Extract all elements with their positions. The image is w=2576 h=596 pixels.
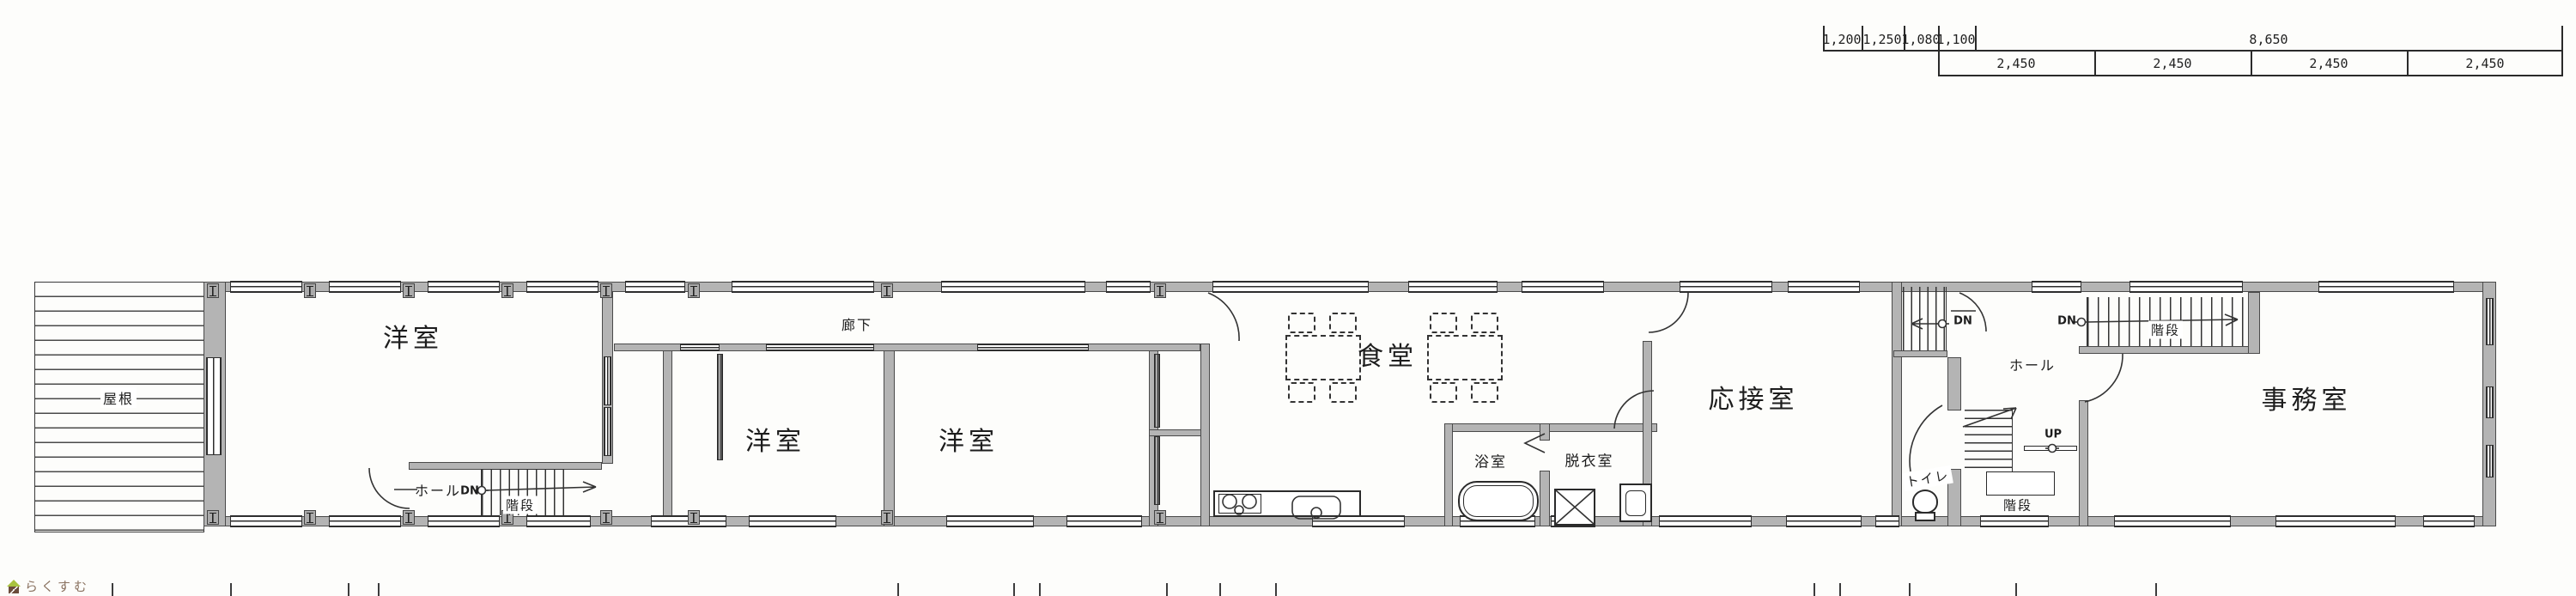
closet-sliding-door (1154, 354, 1160, 428)
window (329, 515, 401, 527)
room-label-dining: 食堂 (1358, 335, 1418, 373)
room-label-hall-east: ホール (2009, 354, 2056, 374)
wall (1444, 423, 1453, 526)
window (2486, 386, 2494, 418)
column-post-icon (688, 283, 700, 298)
window (625, 281, 685, 293)
wall (1947, 357, 1961, 411)
washing-machine (1554, 489, 1595, 526)
chair (1430, 382, 1457, 403)
dimension-tick (1814, 583, 1815, 596)
room-label-toilet: トイレ (1902, 465, 1953, 492)
column-post-icon (1154, 510, 1166, 525)
room-label-reception: 応接室 (1709, 378, 1799, 416)
window (206, 357, 222, 455)
closet-sliding-door (1154, 436, 1160, 505)
room-label-office: 事務室 (2262, 379, 2352, 417)
door-arc (1649, 293, 1688, 332)
stair-treads-dn-hall (1903, 287, 1947, 350)
marker-dn-hall: DN (1953, 315, 1972, 328)
room-label-bathroom: 浴室 (1474, 450, 1507, 471)
column-post-icon (403, 283, 415, 298)
window (1522, 281, 1604, 293)
wall (1444, 423, 1657, 432)
window (2129, 281, 2243, 293)
dining-table (1285, 335, 1361, 380)
chair (1430, 313, 1457, 333)
wall (1893, 350, 1947, 357)
room-label-western-room-2: 洋室 (745, 420, 805, 458)
door-arc (1910, 405, 1942, 471)
door-arc (1208, 293, 1239, 341)
chair (1288, 313, 1315, 333)
window (526, 515, 591, 527)
window (749, 515, 836, 527)
stair-rail (2024, 446, 2077, 451)
wall (1200, 344, 1210, 526)
window (2486, 445, 2494, 477)
level-marker (2078, 319, 2086, 326)
dimension-tick (378, 583, 380, 596)
window (428, 515, 500, 527)
door-arc (369, 468, 410, 508)
window (1408, 281, 1498, 293)
window (1980, 515, 2049, 527)
chair (1471, 313, 1498, 333)
column-post-icon (600, 510, 612, 525)
dimension-tick (2407, 52, 2409, 75)
sliding-door (604, 407, 611, 456)
window (526, 281, 598, 293)
dimension-value: 1,100 (1936, 32, 1975, 47)
room-label-corridor: 廊下 (841, 313, 872, 334)
column-post-icon (304, 510, 316, 525)
room-label-western-room-1: 洋室 (383, 317, 443, 355)
house-icon (7, 580, 21, 593)
wall (1540, 423, 1550, 441)
dimension-tick (2015, 583, 2017, 596)
dimension-tick (1839, 583, 1841, 596)
dimension-tick (2561, 26, 2563, 51)
window (2486, 298, 2494, 345)
column-post-icon (207, 283, 219, 298)
dimension-tick (348, 583, 349, 596)
column-post-icon (1154, 283, 1166, 298)
dimension-tick (1275, 583, 1277, 596)
dimension-tick (230, 583, 232, 596)
dimension-tick (2155, 583, 2157, 596)
dimension-value: 8,650 (2249, 32, 2287, 47)
column-post-icon (403, 510, 415, 525)
window (329, 281, 401, 293)
wall (663, 350, 672, 526)
chair (1329, 313, 1357, 333)
dimension-tick (1219, 583, 1221, 596)
room-label-stairs-west: 階段 (503, 496, 538, 514)
door-arc (2085, 354, 2123, 402)
dimension-line (1823, 50, 2563, 52)
logo-text: らくすむ (25, 577, 90, 595)
room-label-hall-west: ホール (415, 479, 461, 500)
dimension-value: 1,200 (1822, 32, 1861, 47)
room-label-roof: 屋根 (100, 387, 137, 408)
window (2032, 281, 2081, 293)
window (2114, 515, 2231, 527)
room-label-stairs-hall: 階段 (2003, 496, 2032, 514)
window (732, 281, 874, 293)
toilet-bowl (1912, 490, 1938, 514)
column-post-icon (881, 283, 893, 298)
dimension-tick (897, 583, 899, 596)
sliding-door (604, 356, 611, 405)
closet-sliding-door (717, 354, 723, 460)
column-post-icon (688, 510, 700, 525)
sliding-door (680, 344, 720, 351)
floor-plan-canvas: 屋根 洋室 洋室 洋室 廊下 ホール DN 階段 食堂 浴室 脱衣室 応接室 D… (0, 0, 2576, 596)
wall (2248, 292, 2260, 354)
window (1106, 281, 1151, 293)
column-post-icon (881, 510, 893, 525)
dimension-value: 1,080 (1901, 32, 1940, 47)
window (1680, 281, 1772, 293)
dimension-tick (1013, 583, 1015, 596)
wall (884, 350, 895, 526)
column-post-icon (501, 283, 513, 298)
column-post-icon (600, 283, 612, 298)
bathtub-inner (1463, 485, 1534, 517)
window (1312, 515, 1405, 527)
dimension-tick (1909, 583, 1911, 596)
wall (1892, 282, 1902, 526)
dimension-tick (2561, 52, 2563, 75)
dimension-tick (2251, 52, 2252, 75)
sliding-door (977, 344, 1089, 351)
window (1066, 515, 1142, 527)
column-post-icon (304, 283, 316, 298)
dimension-tick (1938, 52, 1940, 75)
chair (1471, 382, 1498, 403)
wall (1540, 471, 1550, 526)
stair-landing (1986, 471, 2055, 496)
dimension-tick (112, 583, 113, 596)
dimension-value: 1,250 (1862, 32, 1901, 47)
dining-table (1427, 335, 1503, 380)
window (1212, 281, 1369, 293)
column-post-icon (207, 510, 219, 525)
stove (1218, 494, 1261, 514)
toilet-tank (1915, 512, 1935, 521)
window (230, 515, 302, 527)
dimension-value: 2,450 (2309, 56, 2348, 71)
dimension-tick (2094, 52, 2096, 75)
sliding-door (766, 344, 874, 351)
window (230, 281, 302, 293)
window (1788, 281, 1860, 293)
chair (1329, 382, 1357, 403)
window (941, 281, 1085, 293)
chair (1288, 382, 1315, 403)
window (1786, 515, 1862, 527)
washbasin-bowl (1625, 490, 1646, 516)
window (2275, 515, 2396, 527)
logo: らくすむ (7, 577, 90, 595)
stair-treads-up-hall (1965, 410, 2013, 471)
dimension-value: 2,450 (1996, 56, 2035, 71)
window (946, 515, 1034, 527)
marker-dn-west: DN (460, 485, 479, 498)
wall (2079, 346, 2260, 354)
dimension-tick (1166, 583, 1168, 596)
window (1659, 515, 1752, 527)
window (1875, 515, 1899, 527)
marker-dn-office: DN (2057, 315, 2076, 328)
dimension-line (1938, 75, 2563, 76)
wall (2079, 400, 2088, 526)
dimension-value: 2,450 (2465, 56, 2504, 71)
marker-up-hall: UP (2044, 429, 2062, 441)
dimension-tick (1039, 583, 1041, 596)
window (428, 281, 500, 293)
window (2318, 281, 2454, 293)
room-label-dressing: 脱衣室 (1565, 449, 1614, 471)
window (2423, 515, 2475, 527)
room-label-stairs-office: 階段 (2148, 321, 2183, 339)
room-label-western-room-3: 洋室 (939, 420, 999, 458)
dimension-value: 2,450 (2153, 56, 2191, 71)
